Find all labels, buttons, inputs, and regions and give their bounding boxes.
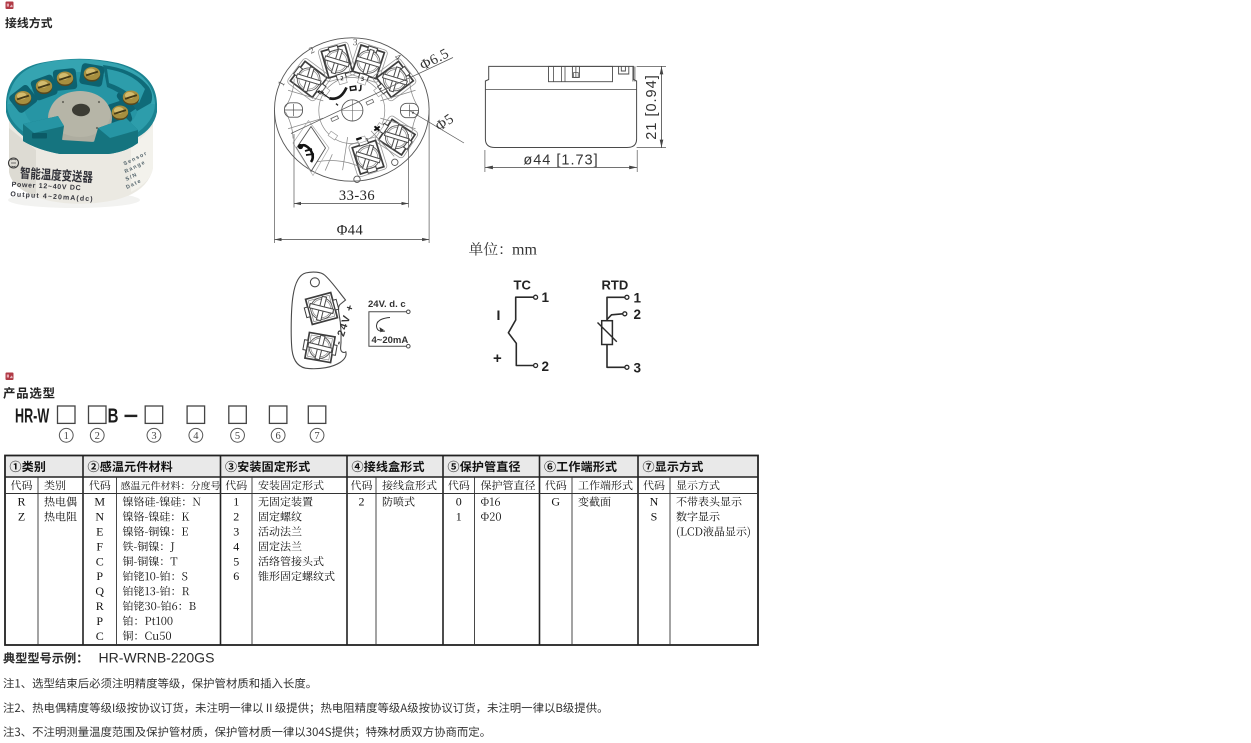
svg-text:3: 3 (233, 525, 239, 539)
svg-text:C: C (96, 629, 104, 643)
svg-text:mm: mm (512, 242, 537, 259)
svg-text:6: 6 (233, 569, 239, 583)
svg-text:Z: Z (18, 510, 25, 524)
svg-text:2: 2 (233, 510, 239, 524)
svg-text:4: 4 (193, 431, 199, 442)
svg-text:F: F (96, 539, 103, 553)
svg-text:+: + (493, 350, 502, 367)
svg-text:Φ6.5: Φ6.5 (417, 45, 452, 74)
svg-text:C: C (96, 554, 104, 568)
svg-text:Φ5: Φ5 (433, 111, 458, 135)
svg-text:2: 2 (95, 431, 100, 442)
svg-text:N: N (95, 510, 104, 524)
svg-text:2: 2 (308, 45, 317, 56)
svg-text:4~20mA: 4~20mA (372, 335, 409, 346)
svg-text:G: G (551, 495, 560, 509)
svg-text:5: 5 (233, 554, 239, 568)
svg-text:M: M (94, 495, 105, 509)
svg-text:R: R (96, 599, 104, 613)
svg-text:HR-W: HR-W (15, 404, 50, 427)
svg-text:I: I (497, 307, 501, 323)
svg-text:ø44 [1.73]: ø44 [1.73] (523, 153, 598, 169)
svg-text:21 [0.94]: 21 [0.94] (644, 74, 660, 139)
svg-text:3: 3 (151, 431, 156, 442)
svg-text:1: 1 (634, 291, 642, 306)
svg-text:24V. d. c: 24V. d. c (368, 299, 406, 310)
svg-text:TC: TC (514, 278, 532, 293)
svg-text:1: 1 (542, 290, 550, 305)
svg-text:0: 0 (456, 495, 462, 509)
svg-text:1: 1 (64, 431, 69, 442)
svg-text:E: E (96, 525, 103, 539)
svg-text:R: R (17, 495, 25, 509)
svg-text:RTD: RTD (602, 278, 629, 293)
svg-text:3: 3 (634, 361, 642, 376)
svg-text:33-36: 33-36 (339, 188, 375, 204)
svg-text:P: P (96, 614, 103, 628)
svg-text:5: 5 (235, 431, 240, 442)
svg-text:1: 1 (233, 495, 239, 509)
svg-text:Q: Q (95, 584, 104, 598)
svg-text:B: B (108, 404, 119, 427)
svg-text:N: N (650, 495, 659, 509)
svg-text:7: 7 (314, 431, 319, 442)
svg-text:2: 2 (542, 359, 550, 374)
svg-text:1: 1 (456, 510, 462, 524)
svg-text:6: 6 (276, 431, 281, 442)
svg-text:HR-WRNB-220GS: HR-WRNB-220GS (99, 650, 215, 666)
svg-text:2: 2 (359, 495, 365, 509)
svg-text:2: 2 (634, 307, 642, 322)
svg-text:4: 4 (233, 539, 239, 553)
svg-text:Φ44: Φ44 (337, 223, 364, 239)
svg-text:S: S (651, 510, 658, 524)
svg-text:P: P (96, 569, 103, 583)
